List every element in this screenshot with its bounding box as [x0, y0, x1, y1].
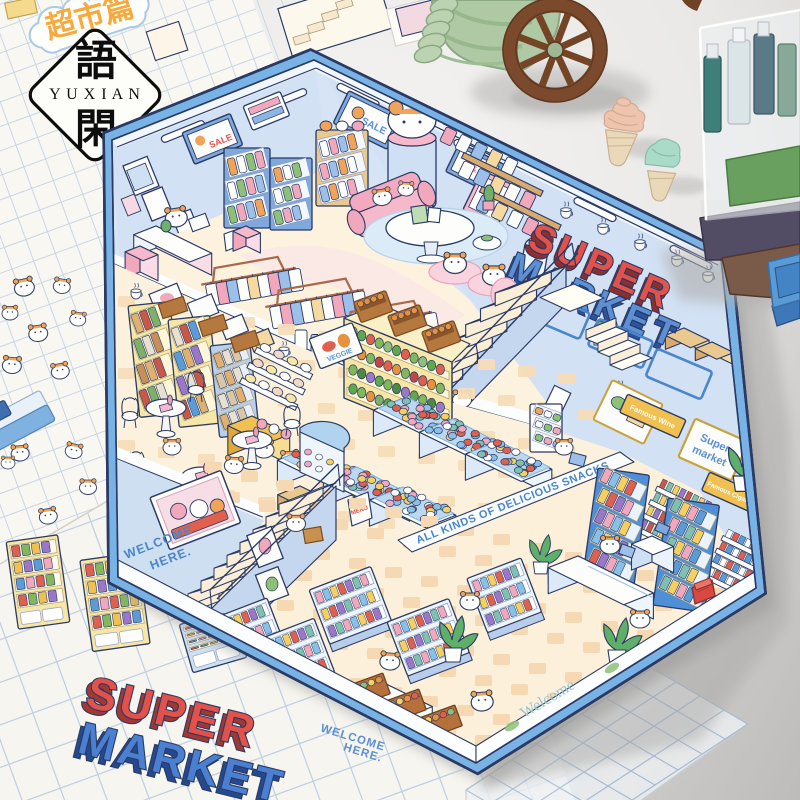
svg-text:語: 語: [75, 38, 117, 85]
svg-text:Y U X I A N: Y U X I A N: [49, 86, 141, 103]
